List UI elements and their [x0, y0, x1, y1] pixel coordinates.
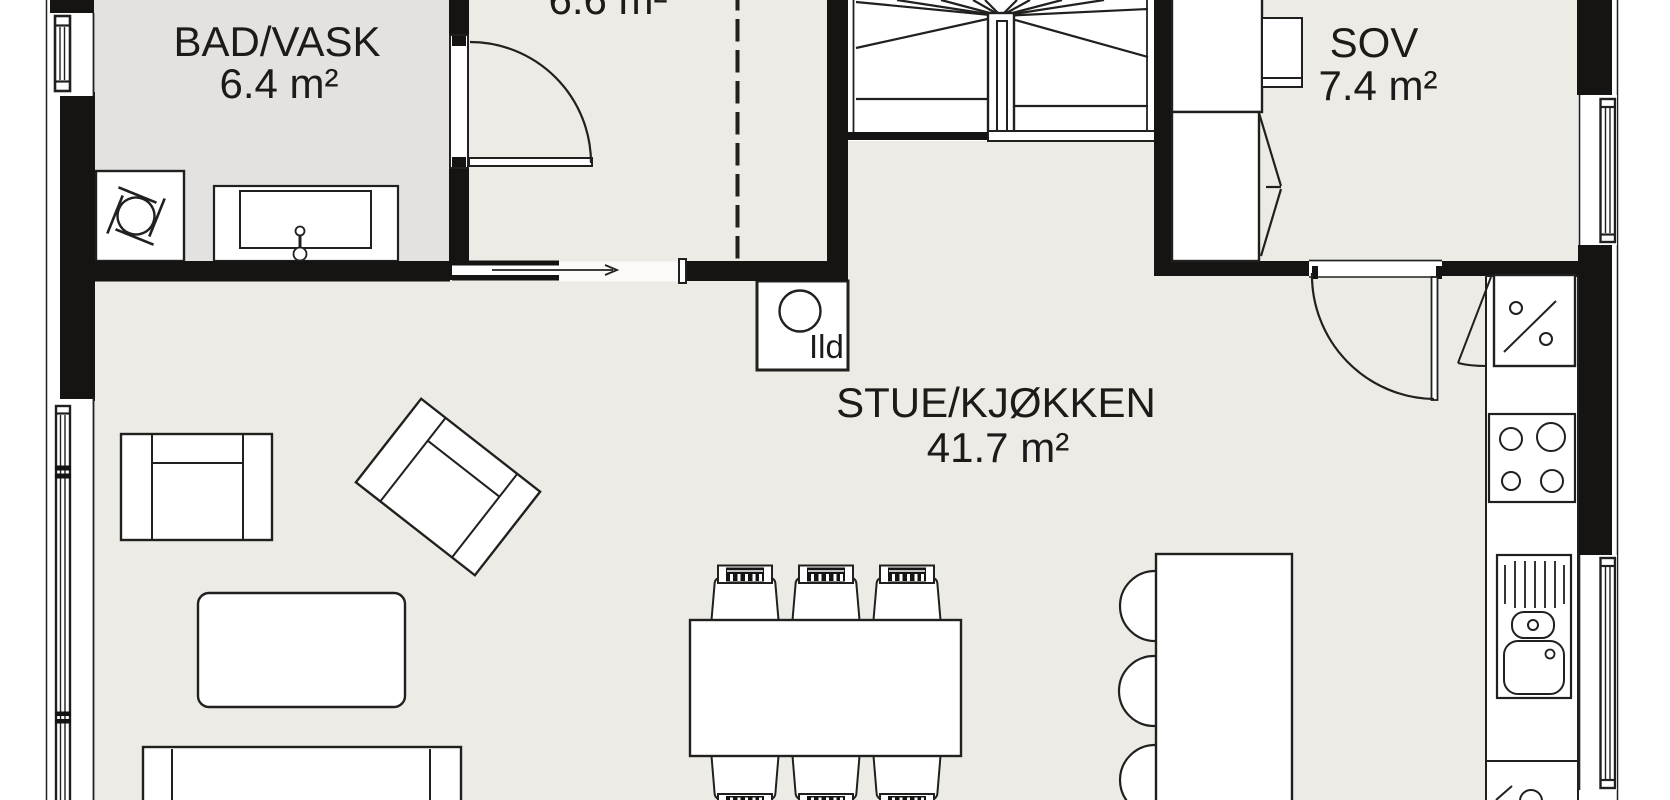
svg-text:Ild: Ild [809, 328, 844, 365]
svg-text:6.4 m²: 6.4 m² [219, 60, 338, 107]
svg-text:41.7 m²: 41.7 m² [927, 424, 1069, 471]
svg-text:7.4 m²: 7.4 m² [1318, 62, 1437, 109]
svg-text:STUE/KJØKKEN: STUE/KJØKKEN [836, 379, 1156, 426]
svg-text:SOV: SOV [1330, 19, 1419, 66]
svg-text:BAD/VASK: BAD/VASK [174, 18, 381, 65]
svg-text:6.6 m²: 6.6 m² [548, 0, 667, 23]
